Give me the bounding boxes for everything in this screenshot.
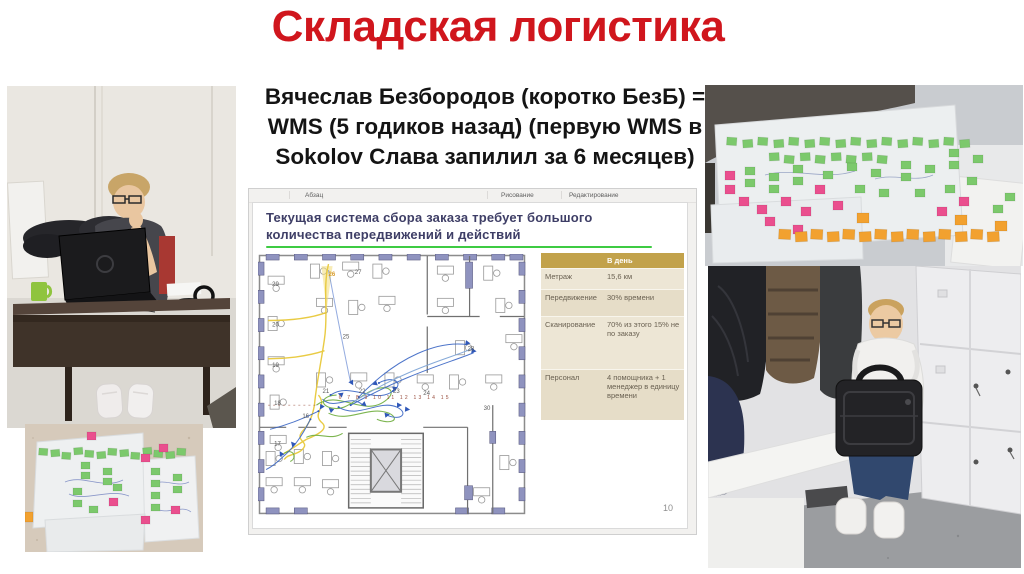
white-sneaker [836,498,866,534]
table-row: Метраж15,6 км [541,268,684,289]
slide-subtitle: Вячеслав Безбородов (коротко БезБ) = WMS… [235,82,735,172]
room-number: 27 [355,270,362,276]
photo-sticky-board [705,85,1023,266]
subtitle-line: WMS (5 годиков назад) (первую WMS в [235,112,735,142]
laptop [59,228,158,311]
lockers [916,266,1021,514]
room-number: 19 [272,363,279,369]
metrics-table: В день Метраж15,6 кмПередвижение30% врем… [541,253,684,420]
room-number: 20 [272,323,279,329]
key-icon [1008,448,1013,453]
green-underline [266,246,652,248]
paper-sheet [45,514,145,552]
key-icon [974,384,979,389]
face [869,305,903,343]
subtitle-line: Вячеслав Безбородов (коротко БезБ) = [235,82,735,112]
ribbon-toolbar: Абзац Рисование Редактирование [249,189,696,203]
slide-canvas: Складская логистика Вячеслав Безбородов … [0,0,1024,574]
laptop-bag [836,368,922,457]
key-icon [1006,370,1011,375]
room-number: 28 [468,347,475,353]
key-icon [974,460,979,465]
table-row: Передвижение30% времени [541,289,684,316]
page-title: Складская логистика [228,2,768,52]
stairwell [349,433,424,508]
paper-sheet [33,433,145,528]
table-row: Персонал4 помощника + 1 менеджер в едини… [541,369,684,420]
subtitle-line: Sokolov Слава запилил за 6 месяцев) [235,142,735,172]
room-number: 30 [484,406,491,412]
embedded-slide: Текущая система сбора заказа требует бол… [252,202,688,529]
room-number: 17 [274,441,281,447]
room-number: 18 [274,401,281,407]
ribbon-group-editing: Редактирование [569,192,619,199]
photo-sticky-flipcharts [25,424,203,552]
ribbon-group-drawing: Рисование [501,192,534,199]
room-number: 25 [343,335,350,341]
room-number: 29 [272,282,279,288]
room-number: 21 [322,389,329,395]
orange-sticky [25,512,33,522]
photo-person-at-desk [7,86,236,428]
room-number: 16 [302,414,309,420]
jeans [848,452,914,500]
embedded-slide-title: Текущая система сбора заказа требует бол… [266,209,666,243]
embedded-app-screenshot: Абзац Рисование Редактирование Текущая с… [248,188,697,535]
white-sneaker [874,502,904,538]
floor-plan-diagram: 292019181726272521222324281630 6 7 8 9 1… [258,254,526,522]
ribbon-group-paragraph: Абзац [305,192,323,199]
table-row: Сканирование70% из этого 15% не по заказ… [541,316,684,369]
page-number: 10 [663,503,673,513]
table-header-row: В день [541,253,684,268]
corridor-numbers: 6 7 8 9 10 11 12 13 14 15 [339,395,451,401]
photo-person-with-bag [708,266,1021,568]
room-number: 26 [329,272,336,278]
